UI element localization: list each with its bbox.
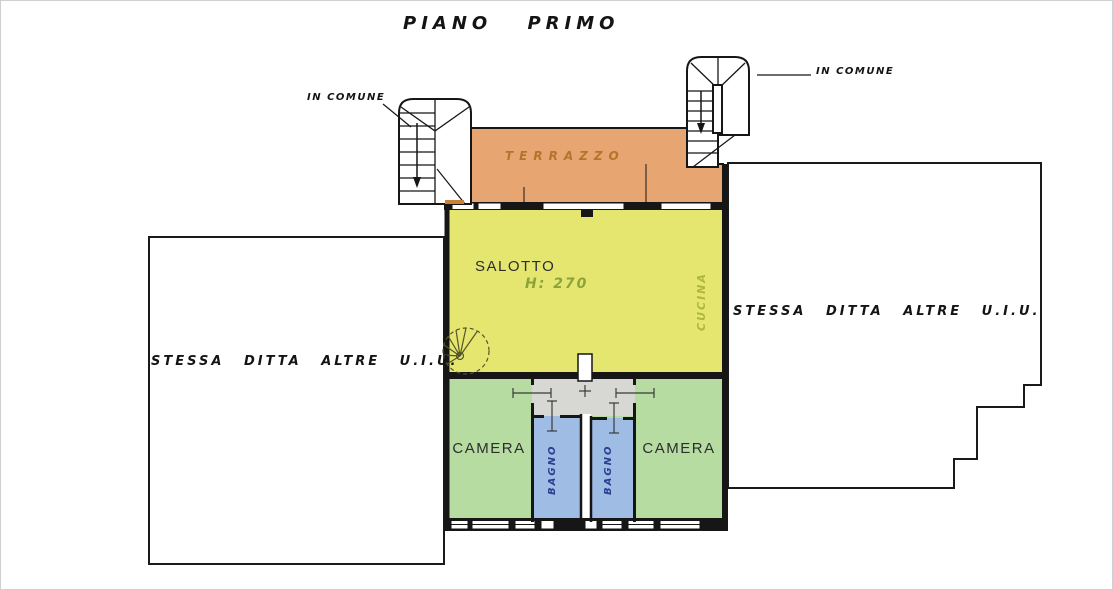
terrace-label: TERRAZZO bbox=[505, 149, 625, 163]
adjacent-unit-right-label: STESSA DITTA ALTRE U.I.U. bbox=[733, 304, 1017, 319]
staircase-right bbox=[687, 57, 749, 167]
adjacent-unit-left-label: STESSA DITTA ALTRE U.I.U. bbox=[151, 354, 444, 369]
living-hall-door bbox=[578, 354, 592, 381]
plan-title: PIANO PRIMO bbox=[403, 13, 619, 34]
bath-right-label: BAGNO bbox=[603, 439, 614, 501]
bedroom-right-label: CAMERA bbox=[635, 440, 723, 457]
bath-left-label: BAGNO bbox=[547, 439, 558, 501]
ceiling-height-label: H: 270 bbox=[525, 276, 588, 292]
stair-left-label: IN COMUNE bbox=[307, 92, 385, 103]
stair-right-label: IN COMUNE bbox=[816, 66, 894, 77]
hallway-room bbox=[532, 378, 635, 416]
bedroom-left-label: CAMERA bbox=[446, 440, 532, 457]
adjacent-unit-left-region bbox=[149, 237, 444, 564]
living-room-label: SALOTTO bbox=[475, 258, 555, 275]
staircase-left bbox=[399, 99, 471, 204]
terrace-room bbox=[448, 128, 723, 204]
floorplan-drawing bbox=[1, 1, 1113, 590]
floorplan-canvas: PIANO PRIMO IN COMUNE IN COMUNE TERRAZZO… bbox=[0, 0, 1113, 590]
adjacent-unit-right-region bbox=[728, 163, 1041, 488]
kitchen-label: CUCINA bbox=[695, 269, 708, 335]
